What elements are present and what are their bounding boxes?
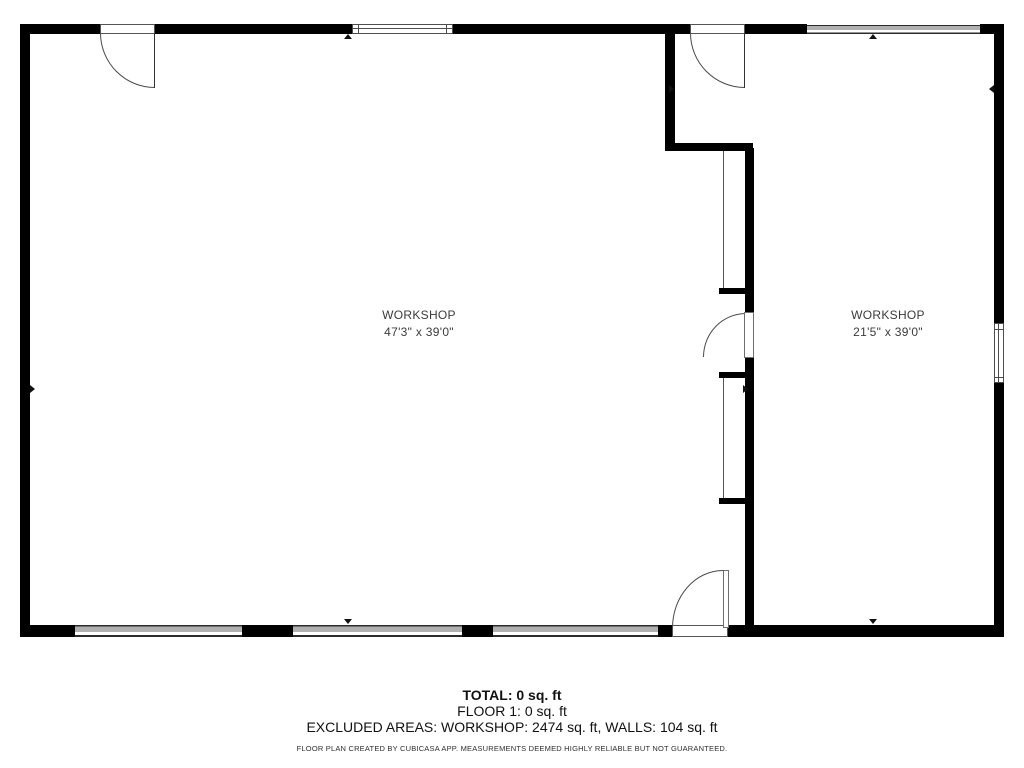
floor-plan-page: WORKSHOP 47'3" x 39'0" WORKSHOP 21'5" x … — [0, 0, 1024, 768]
wall-right-2 — [994, 383, 1004, 637]
window-right-wall-cap-top — [995, 329, 1003, 330]
wall-top-1 — [20, 24, 100, 34]
wall-top-3 — [453, 24, 690, 34]
wall-stub-3 — [719, 498, 749, 504]
window-bottom-2 — [293, 625, 462, 637]
wall-stub-1 — [719, 288, 749, 294]
excluded-area-text: EXCLUDED AREAS: WORKSHOP: 2474 sq. ft, W… — [0, 719, 1024, 735]
wall-bottom-3 — [462, 625, 493, 637]
wall-marker-left-wall — [30, 385, 35, 393]
door-divider-swing-arc — [703, 313, 746, 357]
window-right-wall-cap-bottom — [995, 377, 1003, 378]
window-top-middle-cap-left — [358, 25, 359, 33]
wall-marker-top-left — [344, 34, 352, 39]
wall-bottom-2 — [242, 625, 293, 637]
disclaimer-text: FLOOR PLAN CREATED BY CUBICASA APP. MEAS… — [0, 744, 1024, 753]
door-bottom-swing-arc — [672, 570, 723, 628]
room-name: WORKSHOP — [788, 307, 988, 324]
door-top-right-leaf — [744, 33, 745, 88]
window-top-middle — [352, 24, 453, 34]
room-name: WORKSHOP — [319, 307, 519, 324]
wall-bottom-4 — [658, 625, 672, 637]
window-bottom-3 — [493, 625, 658, 637]
room-dimensions: 47'3" x 39'0" — [319, 324, 519, 341]
sliding-door-leaf-lower — [723, 378, 724, 498]
wall-marker-right-wall-upper — [989, 85, 994, 93]
floor-area-text: FLOOR 1: 0 sq. ft — [0, 703, 1024, 719]
wall-right-1 — [994, 24, 1004, 323]
wall-marker-divider-wall — [743, 385, 748, 393]
room-label-left: WORKSHOP 47'3" x 39'0" — [319, 307, 519, 341]
wall-divider-lower — [745, 358, 754, 628]
wall-interior-horizontal — [665, 143, 753, 151]
door-divider-leaf — [744, 312, 754, 358]
room-label-right: WORKSHOP 21'5" x 39'0" — [788, 307, 988, 341]
wall-left — [20, 24, 30, 637]
door-bottom-leaf — [723, 570, 729, 628]
wall-marker-bottom-left — [344, 619, 352, 624]
window-top-middle-cap-right — [446, 25, 447, 33]
wall-marker-interior-wall — [669, 85, 674, 93]
window-top-middle-midline — [353, 28, 452, 29]
wall-top-4 — [745, 24, 807, 34]
window-right-wall-midline — [998, 324, 999, 382]
room-dimensions: 21'5" x 39'0" — [788, 324, 988, 341]
window-bottom-1 — [75, 625, 242, 637]
wall-marker-bottom-right — [869, 619, 877, 624]
door-top-left-leaf — [154, 33, 155, 88]
window-right-wall — [994, 323, 1004, 383]
area-summary: TOTAL: 0 sq. ft FLOOR 1: 0 sq. ft EXCLUD… — [0, 687, 1024, 735]
wall-bottom-5 — [728, 625, 1004, 637]
wall-marker-top-right — [869, 34, 877, 39]
door-top-left-swing-arc — [100, 33, 155, 88]
wall-top-2 — [155, 24, 352, 34]
sliding-door-leaf-upper — [723, 151, 724, 288]
door-top-right-swing-arc — [690, 33, 745, 88]
total-area-text: TOTAL: 0 sq. ft — [0, 687, 1024, 703]
wall-bottom-1 — [20, 625, 75, 637]
window-top-right — [807, 25, 980, 34]
